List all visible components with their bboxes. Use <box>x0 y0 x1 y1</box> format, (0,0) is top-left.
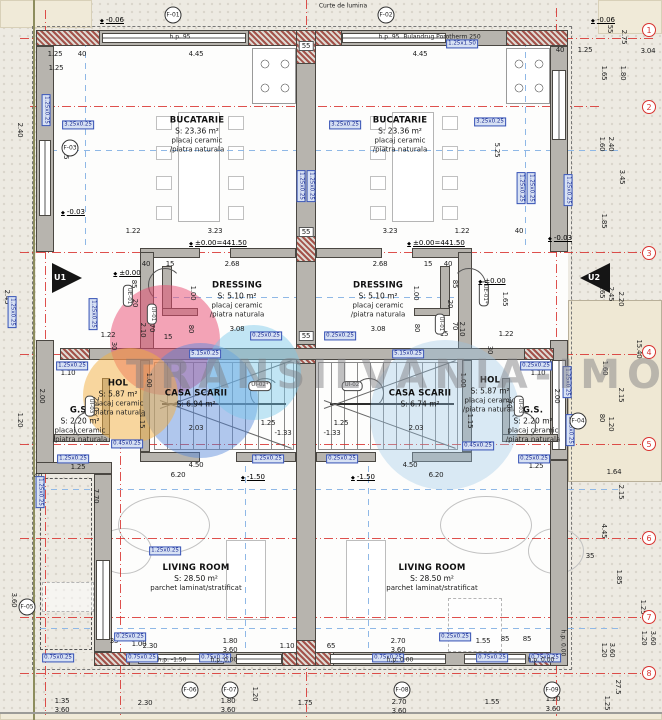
beam-tag: 0.75x0.25 <box>476 653 508 662</box>
annotation-layer: 1.25404.454.45401.253.04552.751.251.651.… <box>0 0 662 720</box>
beam-tag: 0.25x0.25 <box>520 361 552 370</box>
dim-label: 1.75 <box>298 699 313 707</box>
beam-tag: 0.25x0.25 <box>439 632 471 641</box>
dim-label: 3.60 <box>608 643 616 658</box>
dim-label: 4.50 <box>189 461 204 469</box>
dim-label-boxed: 55 <box>299 331 314 341</box>
dim-label: 2.68 <box>373 260 388 268</box>
dim-label: 1.85 <box>615 570 623 585</box>
dim-label: 2.15 <box>617 388 625 403</box>
dim-label: 2.30 <box>138 699 153 707</box>
dim-label: 85 <box>501 635 510 643</box>
elevation-marker: -1.50 <box>351 473 375 481</box>
beam-tag: 5.15x0.25 <box>189 349 221 358</box>
dim-label-boxed: 55 <box>299 227 314 237</box>
beam-tag: 1.25x0.25 <box>57 454 89 463</box>
window-marker: F-02 <box>378 7 395 24</box>
window-marker: F-07 <box>222 682 239 699</box>
dim-label: 3.08 <box>230 325 245 333</box>
beam-tag: 1.25x0.25 <box>563 174 572 206</box>
beam-tag: 5.15x0.25 <box>392 349 424 358</box>
dim-label: 20 <box>446 300 454 309</box>
beam-tag: 1.25x0.25 <box>516 172 525 204</box>
dim-label: 1.20 <box>251 687 259 702</box>
axis-bubble: 6 <box>642 531 656 545</box>
dim-label: 1.35 <box>55 697 70 705</box>
dim-label: 85 <box>451 280 459 289</box>
door-tag: UI-01 <box>147 304 157 325</box>
dim-label: 15 <box>424 260 433 268</box>
dim-label: 3.45 <box>618 170 626 185</box>
beam-tag: 0.25x0.25 <box>324 331 356 340</box>
dim-label: 4.45 <box>413 50 428 58</box>
beam-tag: 1.25x0.25 <box>56 361 88 370</box>
beam-tag: 1.25x0.25 <box>296 170 305 202</box>
dim-label: 3.08 <box>371 325 386 333</box>
window-marker: F-04 <box>570 413 587 430</box>
beam-tag: 1.25x1.50 <box>446 39 478 48</box>
dim-label: 27.5 <box>614 680 622 695</box>
dim-label: 1.15 <box>138 414 146 429</box>
window-marker: F-03 <box>62 140 79 157</box>
beam-tag: 0.25x0.25 <box>518 454 550 463</box>
window-marker: F-06 <box>182 682 199 699</box>
elevation-marker: -0.06 <box>591 16 615 24</box>
beam-tag: 1.25x0.25 <box>526 172 535 204</box>
dim-label: 2.03 <box>409 424 424 432</box>
dim-label: 1.25 <box>261 419 276 427</box>
dim-label: 5.25 <box>493 143 501 158</box>
dim-label: 1.00 <box>189 286 197 301</box>
dim-label: 3.23 <box>208 227 223 235</box>
dim-label: 2.70 <box>392 698 407 706</box>
dim-label: 2.10 <box>458 322 466 337</box>
dim-label: 1.00 <box>145 373 153 388</box>
axis-bubble: 1 <box>642 23 656 37</box>
dim-label: 1.55 <box>476 637 491 645</box>
annotation-note: h.p. 0.00 <box>560 630 567 657</box>
beam-tag: 1.25x0.25 <box>41 94 50 126</box>
dim-label: 2.70 <box>391 637 406 645</box>
beam-tag: 3.25x0.25 <box>474 117 506 126</box>
window-marker: F-01 <box>165 7 182 24</box>
dim-label: 35 <box>586 552 595 560</box>
beam-tag: 1.25x0.25 <box>306 170 315 202</box>
dim-label: 1.20 <box>607 417 615 432</box>
annotation-note: h.p. 0.00 <box>387 657 414 664</box>
beam-tag: 1.25x0.25 <box>252 454 284 463</box>
dim-label: 1.22 <box>499 330 514 338</box>
dim-label: 1.60 <box>601 361 609 376</box>
window-marker: F-08 <box>394 682 411 699</box>
elevation-marker: -1.50 <box>241 473 265 481</box>
elevation-marker: ±0.00 <box>113 269 140 277</box>
dim-label: 30 <box>486 346 494 355</box>
dim-label: 2.03 <box>189 424 204 432</box>
axis-bubble: 5 <box>642 437 656 451</box>
door-tag: UI-01 <box>435 314 445 335</box>
door-tag: UE-01* <box>479 281 489 306</box>
beam-tag: 0.25x0.25 <box>114 632 146 641</box>
dim-label: 2.20 <box>617 292 625 307</box>
dim-label: 3.04 <box>641 47 656 55</box>
annotation-note: h.p. 95 <box>379 34 400 41</box>
beam-tag: 1.25x0.25 <box>35 476 44 508</box>
beam-tag: 0.75x0.25 <box>126 653 158 662</box>
annotation-note: Bulandrug Porotherm 250 <box>403 34 480 41</box>
dim-label: 1.15 <box>466 414 474 429</box>
dim-label: 1.25 <box>71 463 86 471</box>
dim-label-boxed: 55 <box>299 41 314 51</box>
dim-label: 1.25 <box>334 419 349 427</box>
dim-label: 4.45 <box>600 524 608 539</box>
dim-label: 80 <box>598 414 606 423</box>
dim-label: 1.10 <box>280 642 295 650</box>
dim-label: 1.20 <box>600 643 608 658</box>
dim-label: 6.20 <box>429 471 444 479</box>
dim-label: 3.60 <box>221 706 236 714</box>
dim-label: 1.80 <box>223 637 238 645</box>
elevation-marker: -0.06 <box>100 16 124 24</box>
dim-label: 4.50 <box>403 461 418 469</box>
axis-bubble: 7 <box>642 610 656 624</box>
dim-label: 3.60 <box>55 706 70 714</box>
beam-tag: 1.25x0.25 <box>7 296 16 328</box>
annotation-note: h.p. -1.50 <box>158 657 187 664</box>
dim-label: 2.40 <box>607 137 615 152</box>
beam-tag: 0.45x0.25 <box>111 439 143 448</box>
dim-label: 2.40 <box>16 123 24 138</box>
dim-label: 1.22 <box>101 331 116 339</box>
dim-label: 40 <box>78 50 87 58</box>
dim-label: 1.60 <box>598 137 606 152</box>
dim-label: 2.75 <box>620 30 628 45</box>
dim-label: 2.68 <box>225 260 240 268</box>
dim-label: 1.22 <box>126 227 141 235</box>
door-tag: UI-03 <box>85 396 95 417</box>
dim-label: 30 <box>110 342 118 351</box>
axis-bubble: 3 <box>642 246 656 260</box>
dim-label: 15 <box>164 333 173 341</box>
door-tag: UI-03 <box>514 396 524 417</box>
entrance-arrow-u1: U1 <box>52 263 82 293</box>
dim-label: 2.00 <box>553 389 561 404</box>
dim-label: 3.23 <box>383 227 398 235</box>
dim-label: 2.15 <box>617 485 625 500</box>
axis-bubble: 2 <box>642 100 656 114</box>
annotation-note: h.p. 95 <box>170 34 191 41</box>
dim-label: 1.00 <box>412 286 420 301</box>
dim-label: -1.33 <box>323 429 340 437</box>
beam-tag: 1.25x0.25 <box>562 366 571 398</box>
dim-label: 3.60 <box>10 593 18 608</box>
elevation-marker: ±0.00=441.50 <box>189 239 247 247</box>
dim-label: 3.60 <box>546 705 561 713</box>
floor-plan-canvas: BUCATARIES: 23.36 m²placaj ceramic/piatr… <box>0 0 662 720</box>
dim-label: 1.65 <box>501 292 509 307</box>
beam-tag: 3.25x0.25 <box>62 120 94 129</box>
dim-label: 1.85 <box>600 214 608 229</box>
dim-label: 3.60 <box>392 707 407 715</box>
dim-label: 2.10 <box>139 323 147 338</box>
beam-tag: 3.25x0.25 <box>329 120 361 129</box>
dim-label: 1.25 <box>48 50 63 58</box>
dim-label: -1.33 <box>274 429 291 437</box>
beam-tag: 1.25x0.25 <box>88 298 97 330</box>
dim-label: 1.25 <box>603 696 611 711</box>
dim-label: 2.00 <box>38 389 46 404</box>
dim-label: 55 <box>606 25 614 34</box>
annotation-note: h.p. 0.00 <box>211 657 238 664</box>
beam-tag: 1.25x0.25 <box>149 546 181 555</box>
dim-label: 40 <box>515 227 524 235</box>
dim-label: 1.00 <box>459 373 467 388</box>
annotation-note: h.p. 0.00 <box>528 657 555 664</box>
entrance-arrow-u2: U2 <box>580 263 610 293</box>
beam-tag: 0.25x0.25 <box>250 331 282 340</box>
axis-bubble: 8 <box>642 666 656 680</box>
dim-label: 1.55 <box>485 698 500 706</box>
elevation-marker: ±0.00 <box>478 277 505 285</box>
elevation-marker: -0.03 <box>61 208 85 216</box>
dim-label: 1.80 <box>619 66 627 81</box>
dim-label: 65 <box>327 642 336 650</box>
dim-label: 1.25 <box>49 64 64 72</box>
dim-label: 1.65 <box>600 66 608 81</box>
dim-label: 15 <box>166 260 175 268</box>
dim-label: 80 <box>187 325 195 334</box>
beam-tag: 0.75x0.25 <box>42 653 74 662</box>
door-tag: UE-01 <box>123 285 133 307</box>
dim-label: 1.20 <box>640 631 648 646</box>
window-marker: F-09 <box>544 682 561 699</box>
elevation-marker: ±0.00=441.50 <box>407 239 465 247</box>
dim-label: 7.70 <box>92 489 100 504</box>
annotation-note: Curte de lumina <box>319 3 367 10</box>
dim-label: 70 <box>505 400 513 409</box>
dim-label: 40 <box>142 260 151 268</box>
dim-label: 40 <box>556 46 565 54</box>
dim-label: 85 <box>523 635 532 643</box>
beam-tag: 0.45x0.25 <box>462 441 494 450</box>
dim-label: 80 <box>413 324 421 333</box>
window-marker: F-05 <box>19 599 36 616</box>
elevation-marker: -0.03 <box>548 234 572 242</box>
dim-label: 1.64 <box>607 468 622 476</box>
door-tag: UI-02* <box>248 381 271 391</box>
entrance-label: U2 <box>588 273 600 282</box>
dim-label: 40 <box>444 260 453 268</box>
entrance-label: U1 <box>54 273 66 282</box>
dim-label: 2.30 <box>143 642 158 650</box>
dim-label: 6.20 <box>171 471 186 479</box>
dim-label: 1.20 <box>16 413 24 428</box>
axis-bubble: 4 <box>642 345 656 359</box>
door-tag: UI-02 <box>342 381 363 391</box>
beam-tag: 0.25x0.25 <box>326 454 358 463</box>
dim-label: 4.45 <box>189 50 204 58</box>
dim-label: 70 <box>148 324 156 333</box>
dim-label: 1.25 <box>578 46 593 54</box>
dim-label: 1.22 <box>455 227 470 235</box>
dim-label: 3.60 <box>649 631 657 646</box>
